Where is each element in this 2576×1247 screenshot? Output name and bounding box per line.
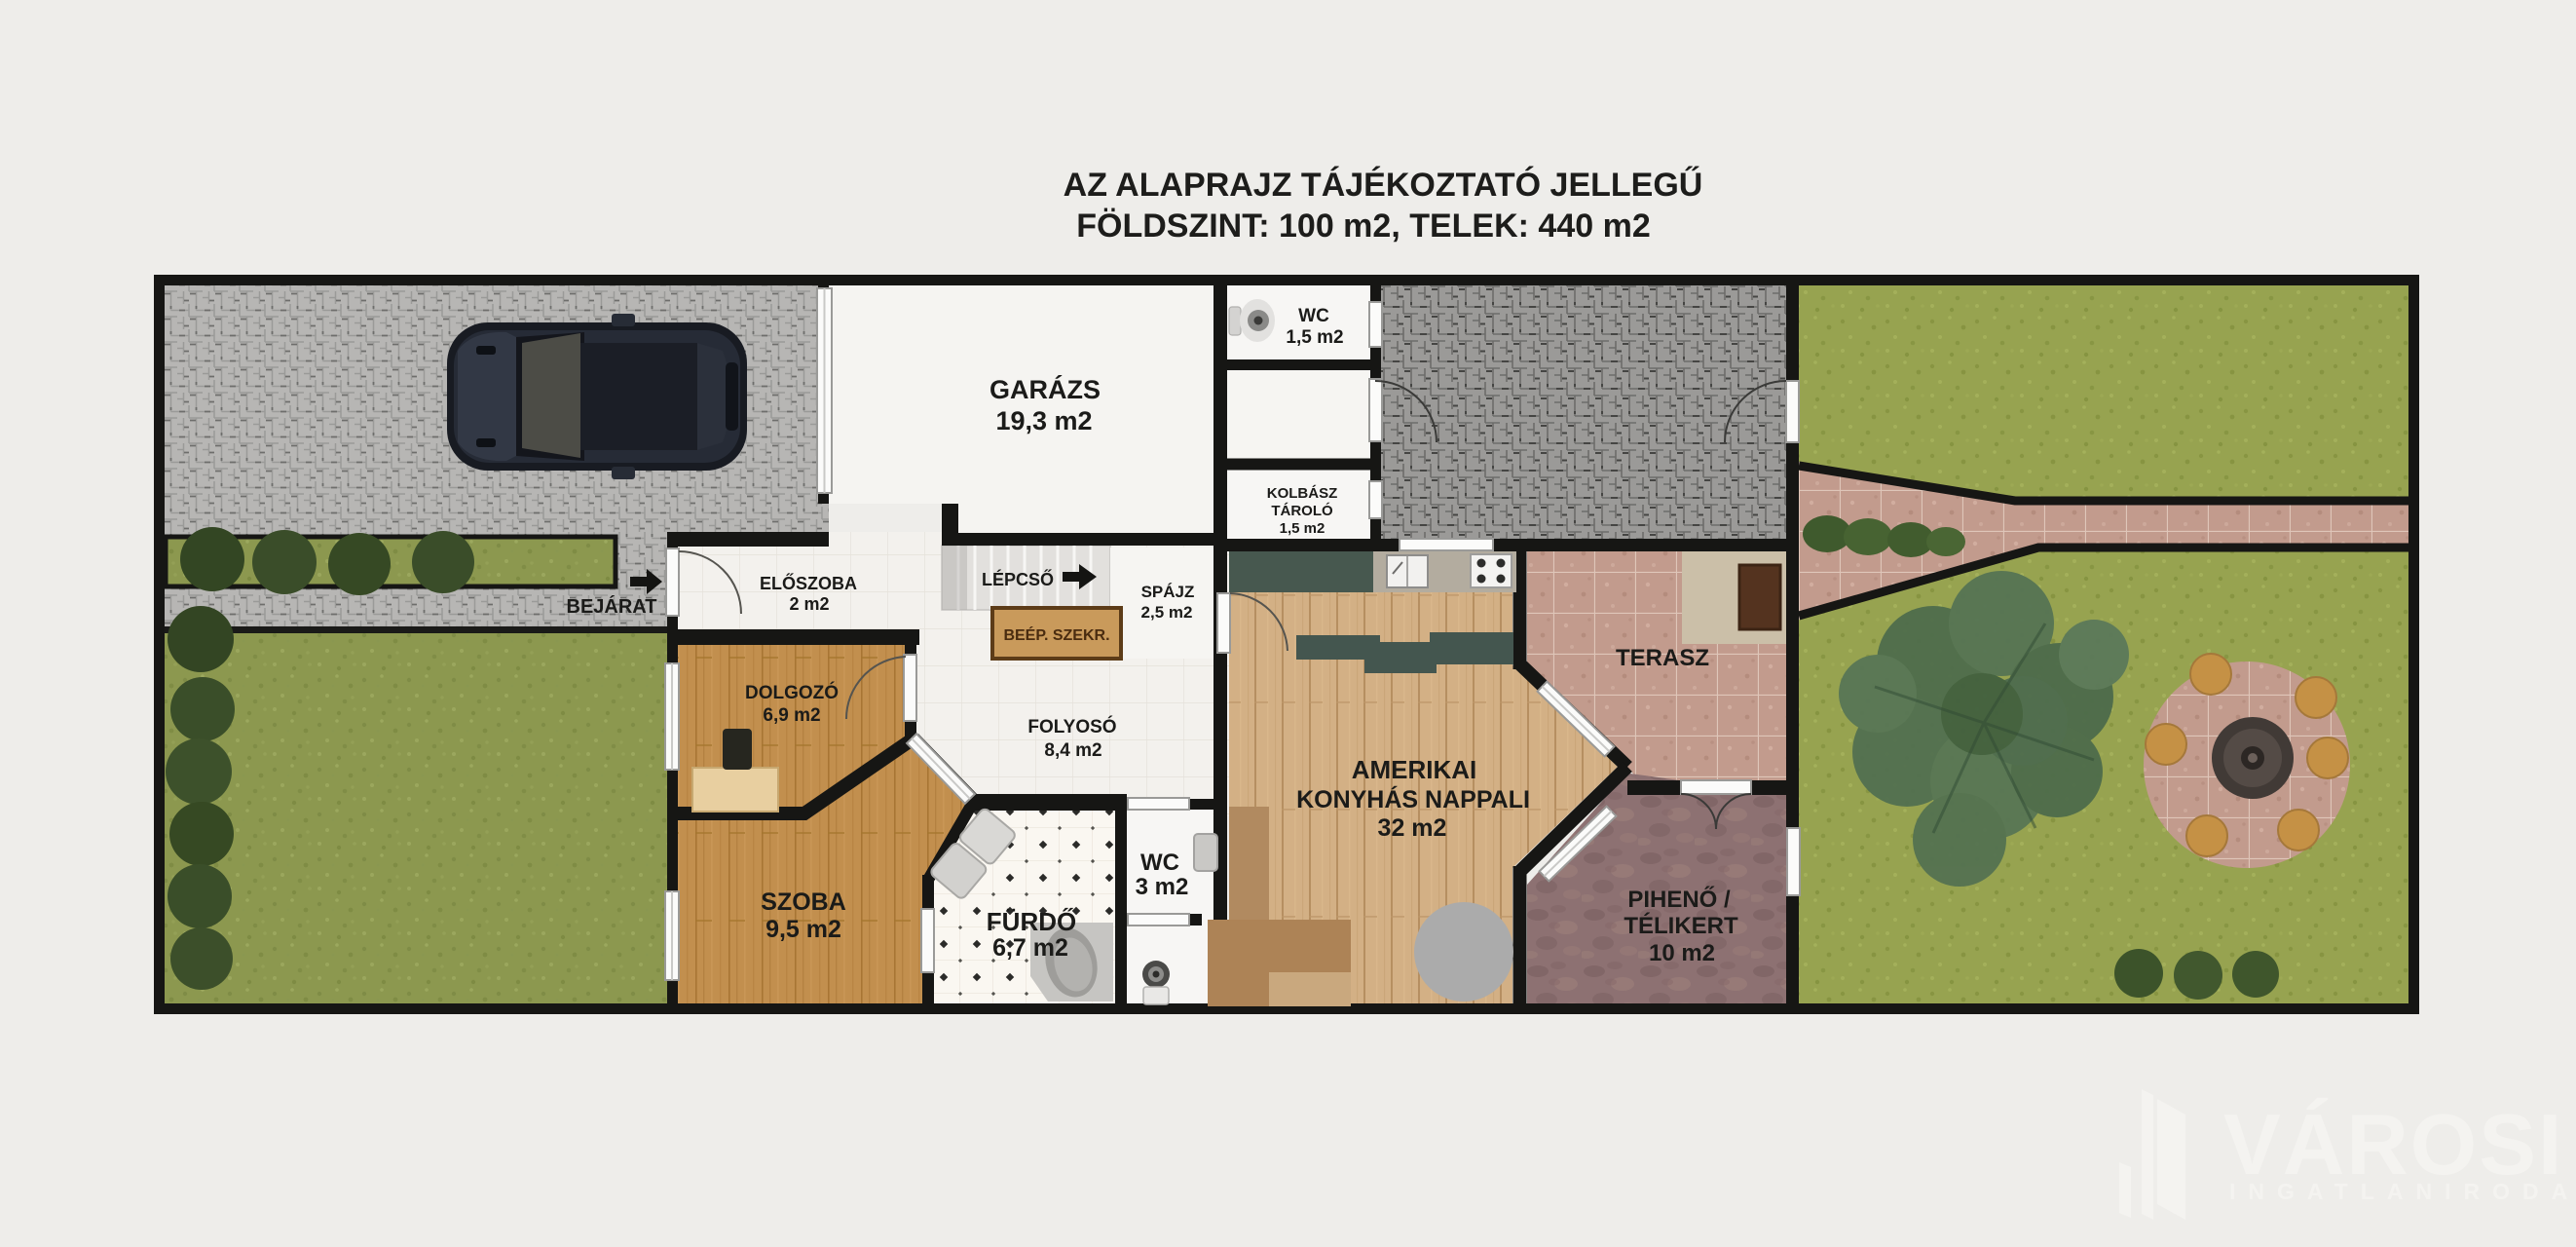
svg-text:LÉPCSŐ: LÉPCSŐ (982, 569, 1054, 589)
svg-text:1,5 m2: 1,5 m2 (1280, 520, 1325, 537)
svg-text:6,7 m2: 6,7 m2 (992, 934, 1068, 962)
svg-text:1,5 m2: 1,5 m2 (1286, 327, 1343, 348)
svg-text:WC: WC (1140, 850, 1179, 876)
svg-text:SPÁJZ: SPÁJZ (1141, 583, 1195, 601)
svg-text:3 m2: 3 m2 (1136, 874, 1189, 900)
svg-text:10 m2: 10 m2 (1649, 940, 1715, 966)
svg-text:INGATLANIRODA: INGATLANIRODA (2229, 1179, 2576, 1204)
svg-text:AMERIKAI: AMERIKAI (1352, 755, 1477, 784)
svg-text:9,5 m2: 9,5 m2 (765, 916, 841, 943)
svg-text:GARÁZS: GARÁZS (989, 374, 1101, 404)
svg-text:BEÉP. SZEKR.: BEÉP. SZEKR. (1003, 625, 1109, 644)
svg-text:PIHENŐ /: PIHENŐ / (1627, 886, 1731, 913)
svg-text:19,3 m2: 19,3 m2 (995, 406, 1092, 435)
svg-text:BEJÁRAT: BEJÁRAT (567, 595, 657, 618)
svg-text:2,5 m2: 2,5 m2 (1141, 603, 1193, 622)
svg-text:2 m2: 2 m2 (789, 594, 829, 614)
svg-text:DOLGOZÓ: DOLGOZÓ (745, 682, 839, 703)
svg-text:TÁROLÓ: TÁROLÓ (1271, 502, 1333, 519)
svg-text:FÜRDŐ: FÜRDŐ (987, 907, 1076, 936)
svg-text:WC: WC (1298, 306, 1329, 326)
svg-text:KONYHÁS NAPPALI: KONYHÁS NAPPALI (1296, 785, 1530, 813)
svg-text:ELŐSZOBA: ELŐSZOBA (760, 573, 857, 593)
svg-text:AZ ALAPRAJZ TÁJÉKOZTATÓ JELLEG: AZ ALAPRAJZ TÁJÉKOZTATÓ JELLEGŰ (1064, 167, 1703, 204)
svg-text:FÖLDSZINT: 100 m2, TELEK: 440: FÖLDSZINT: 100 m2, TELEK: 440 m2 (1076, 208, 1651, 245)
svg-text:32 m2: 32 m2 (1378, 814, 1447, 842)
svg-text:TERASZ: TERASZ (1616, 645, 1709, 671)
svg-text:FOLYOSÓ: FOLYOSÓ (1027, 716, 1116, 737)
svg-text:TÉLIKERT: TÉLIKERT (1624, 912, 1738, 939)
svg-text:SZOBA: SZOBA (761, 888, 846, 916)
svg-text:KOLBÁSZ: KOLBÁSZ (1267, 485, 1338, 502)
svg-text:8,4 m2: 8,4 m2 (1044, 740, 1101, 761)
svg-text:6,9 m2: 6,9 m2 (763, 705, 820, 726)
